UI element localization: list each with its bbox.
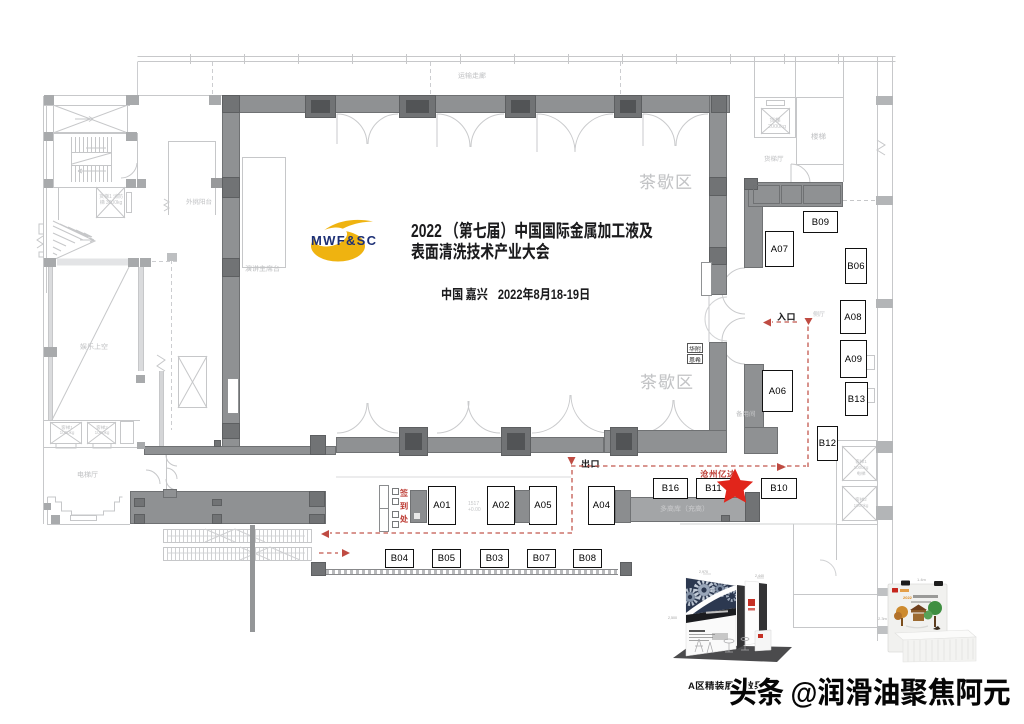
svg-text:2.3m: 2.3m — [878, 616, 888, 621]
svg-text:2022: 2022 — [903, 595, 913, 600]
svg-text:2,440: 2,440 — [755, 574, 764, 578]
svg-text:2,970: 2,970 — [699, 570, 708, 574]
svg-text:2,500: 2,500 — [668, 616, 677, 620]
svg-text:MWF&SC: MWF&SC — [311, 233, 377, 248]
svg-text:1.4m: 1.4m — [917, 577, 927, 582]
